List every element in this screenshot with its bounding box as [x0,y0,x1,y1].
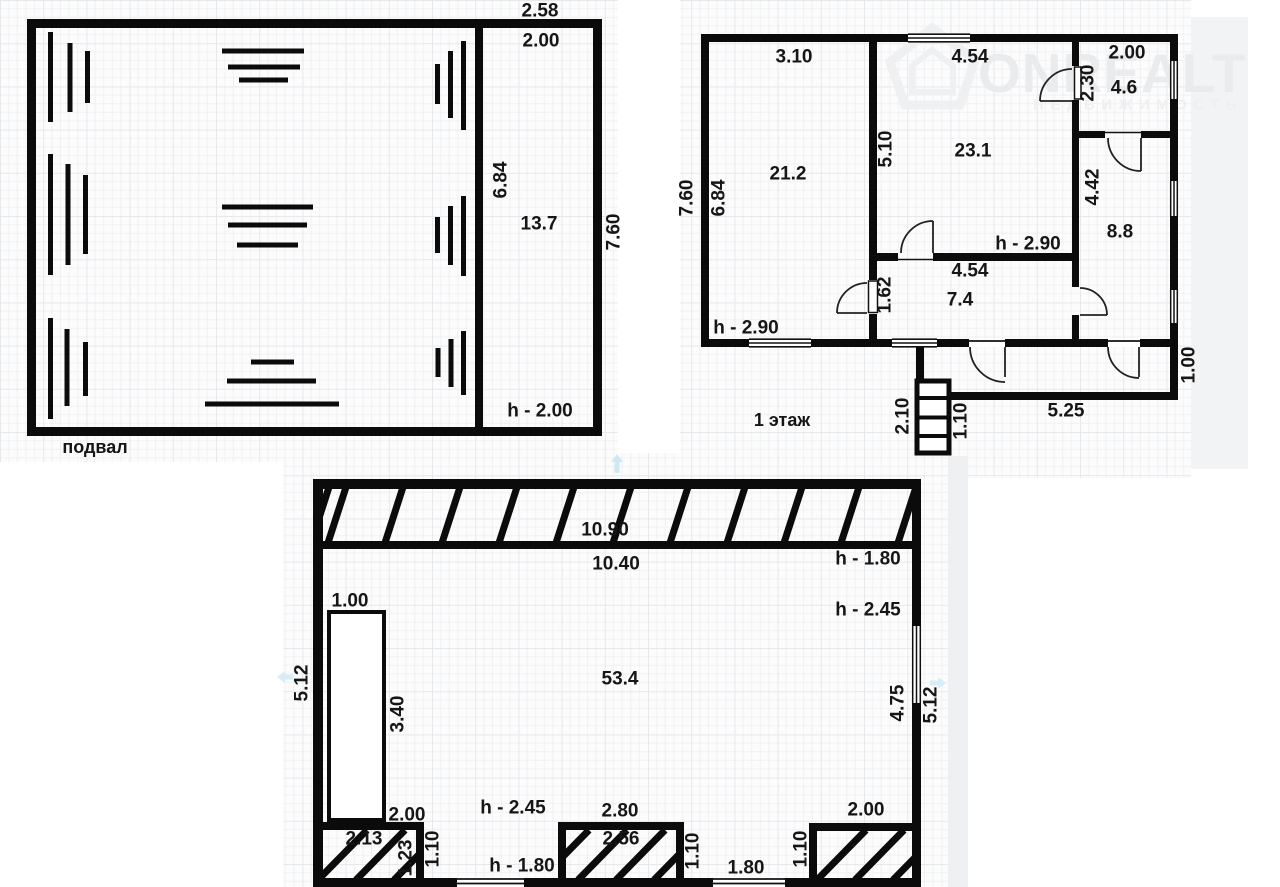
svg-text:НЕДВИЖИМОСТЬ: НЕДВИЖИМОСТЬ [1033,97,1243,114]
svg-text:7.60: 7.60 [604,214,625,251]
svg-text:4.42: 4.42 [1083,169,1104,206]
svg-text:10.90: 10.90 [581,520,629,541]
svg-text:3.10: 3.10 [776,47,813,68]
svg-text:2.30: 2.30 [1078,65,1099,102]
svg-text:4.54: 4.54 [952,261,989,282]
svg-text:h - 2.00: h - 2.00 [507,401,572,422]
svg-text:1 этаж: 1 этаж [754,410,811,430]
svg-text:2.58: 2.58 [522,1,559,22]
svg-text:h - 1.80: h - 1.80 [489,856,554,877]
svg-text:1.23: 1.23 [396,840,417,877]
svg-text:5.12: 5.12 [292,665,313,702]
svg-text:23.1: 23.1 [955,141,992,162]
svg-text:5.25: 5.25 [1048,401,1085,422]
svg-text:10.40: 10.40 [592,554,640,575]
svg-text:4.75: 4.75 [888,684,909,721]
svg-text:7.60: 7.60 [677,180,698,217]
svg-text:5.12: 5.12 [921,687,942,724]
svg-text:1.00: 1.00 [332,591,369,612]
svg-text:1.80: 1.80 [728,858,765,879]
svg-text:h - 1.80: h - 1.80 [835,549,900,570]
svg-text:h - 2.90: h - 2.90 [713,318,778,339]
svg-text:h - 2.45: h - 2.45 [480,798,546,819]
svg-text:1.10: 1.10 [423,831,444,868]
svg-text:4.6: 4.6 [1111,78,1137,99]
svg-text:6.84: 6.84 [709,179,730,216]
svg-text:1.10: 1.10 [951,403,972,440]
svg-text:3.40: 3.40 [388,696,409,733]
svg-text:2.00: 2.00 [848,800,885,821]
svg-text:2.56: 2.56 [603,829,640,850]
svg-text:2.13: 2.13 [346,829,383,850]
svg-text:4.54: 4.54 [952,47,989,68]
svg-text:21.2: 21.2 [770,164,807,185]
svg-text:6.84: 6.84 [491,161,512,198]
svg-text:h - 2.45: h - 2.45 [835,600,901,621]
svg-text:7.4: 7.4 [947,290,974,311]
svg-text:8.8: 8.8 [1107,222,1133,243]
svg-text:5.10: 5.10 [876,131,897,168]
svg-text:1.10: 1.10 [791,831,812,868]
svg-text:2.00: 2.00 [523,31,560,52]
svg-text:53.4: 53.4 [602,669,639,690]
svg-text:2.10: 2.10 [893,398,914,435]
svg-text:1.62: 1.62 [875,277,896,314]
svg-text:2.00: 2.00 [1109,43,1146,64]
svg-text:1.10: 1.10 [683,833,704,870]
svg-text:2.80: 2.80 [602,801,639,822]
svg-text:h - 2.90: h - 2.90 [995,234,1060,255]
svg-text:1.00: 1.00 [1179,347,1200,384]
svg-text:13.7: 13.7 [521,214,558,235]
svg-text:подвал: подвал [62,437,127,457]
svg-text:2.00: 2.00 [389,805,426,826]
